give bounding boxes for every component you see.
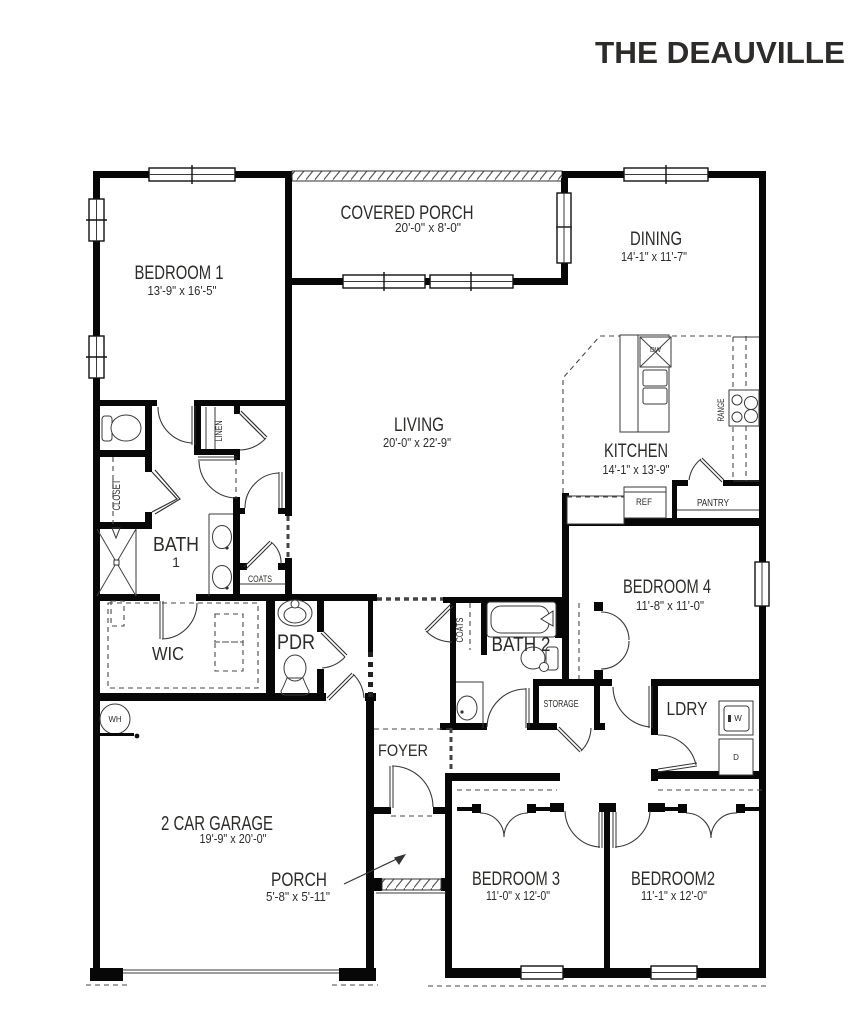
svg-text:11'-1" x 12'-0": 11'-1" x 12'-0" xyxy=(641,888,707,903)
svg-text:KITCHEN: KITCHEN xyxy=(604,441,668,462)
svg-text:W: W xyxy=(734,714,742,723)
svg-text:D: D xyxy=(733,753,739,762)
svg-text:19'-9" x 20'-0": 19'-9" x 20'-0" xyxy=(200,831,267,846)
svg-text:DW: DW xyxy=(650,347,661,354)
svg-text:COATS: COATS xyxy=(248,574,272,584)
svg-text:14'-1" x 11'-7": 14'-1" x 11'-7" xyxy=(621,249,687,264)
svg-text:13'-9" x 16'-5": 13'-9" x 16'-5" xyxy=(148,283,217,298)
svg-text:WIC: WIC xyxy=(152,644,184,664)
svg-text:DINING: DINING xyxy=(630,229,682,250)
svg-text:BEDROOM 4: BEDROOM 4 xyxy=(623,577,711,598)
svg-text:20'-0" x 22'-9": 20'-0" x 22'-9" xyxy=(383,435,451,450)
svg-text:PDR: PDR xyxy=(277,631,315,654)
svg-text:BEDROOM2: BEDROOM2 xyxy=(631,869,715,890)
svg-text:PANTRY: PANTRY xyxy=(697,497,729,509)
svg-text:PORCH: PORCH xyxy=(271,870,327,891)
svg-text:LINEN: LINEN xyxy=(214,420,225,441)
svg-text:BEDROOM 1: BEDROOM 1 xyxy=(135,263,224,284)
svg-text:BATH: BATH xyxy=(153,534,199,556)
svg-text:STORAGE: STORAGE xyxy=(544,698,579,710)
svg-text:20'-0" x 8'-0": 20'-0" x 8'-0" xyxy=(395,220,461,235)
svg-text:LDRY: LDRY xyxy=(667,699,708,719)
svg-text:1: 1 xyxy=(172,554,180,570)
svg-text:11'-8" x 11'-0": 11'-8" x 11'-0" xyxy=(636,598,704,613)
svg-text:WH: WH xyxy=(109,715,122,724)
svg-text:BEDROOM 3: BEDROOM 3 xyxy=(472,869,560,890)
svg-text:5'-8" x 5'-11": 5'-8" x 5'-11" xyxy=(266,889,330,904)
svg-text:REF: REF xyxy=(636,497,652,508)
svg-text:THE DEAUVILLE: THE DEAUVILLE xyxy=(595,35,845,70)
svg-text:BATH 2: BATH 2 xyxy=(492,634,551,656)
svg-text:FOYER: FOYER xyxy=(378,741,428,760)
svg-text:14'-1" x 13'-9": 14'-1" x 13'-9" xyxy=(603,462,670,477)
svg-text:CLOSET: CLOSET xyxy=(111,479,123,510)
svg-text:11'-0" x 12'-0": 11'-0" x 12'-0" xyxy=(486,888,550,903)
svg-text:COATS: COATS xyxy=(454,618,466,643)
svg-text:LIVING: LIVING xyxy=(394,415,444,436)
svg-text:RANGE: RANGE xyxy=(716,399,727,422)
